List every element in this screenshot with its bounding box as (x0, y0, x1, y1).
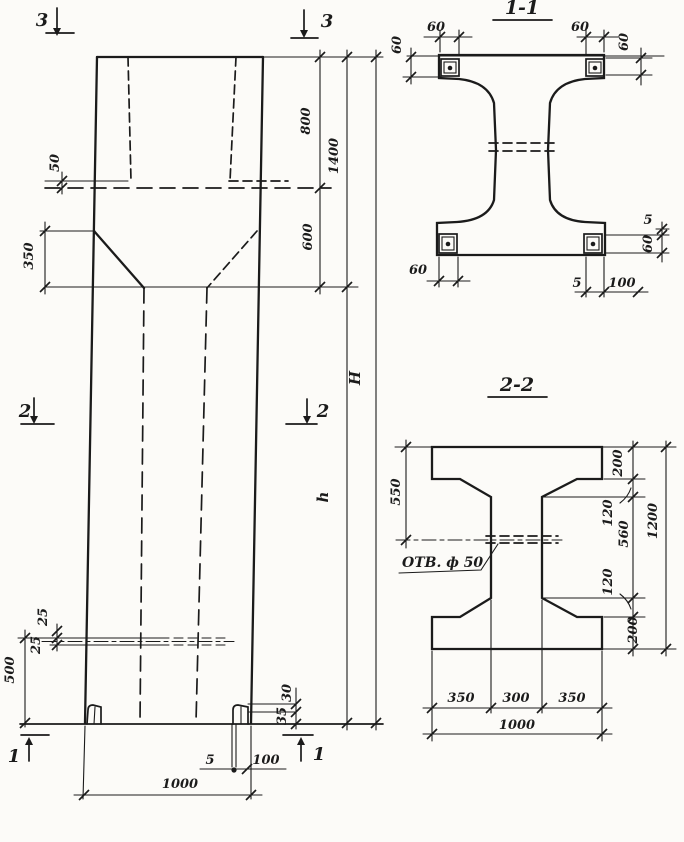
column-drawing: 50 350 800 1400 600 H h 25 25 500 30 35 … (0, 0, 684, 842)
dim-label-1000: 1000 (499, 718, 535, 733)
marker-arrowhead (53, 28, 61, 36)
dim-label-25-upper: 25 (36, 608, 51, 627)
dim-label-600: 600 (301, 223, 316, 250)
dim-label-r60: 60 (617, 33, 632, 51)
dim-label-800: 800 (299, 107, 314, 134)
marker-label: 1 (313, 744, 326, 765)
section-2-2-view: 2-2 ОТВ. ф 50 (389, 374, 676, 741)
marker-label: 2 (18, 401, 32, 422)
plate-dot (591, 242, 596, 247)
marker-arrowhead (300, 30, 308, 38)
hole-label: ОТВ. ф 50 (402, 555, 483, 571)
marker-arrowhead (303, 416, 311, 424)
web-hidden-line-right (196, 288, 207, 722)
plate-dot (448, 66, 453, 71)
marker-label: 2 (316, 401, 330, 422)
cap-hidden-line-left (128, 57, 131, 181)
dim-label-l60: 60 (390, 36, 405, 54)
section-marker-3-right: 3 (291, 10, 333, 38)
dim-label-b100: 100 (608, 276, 635, 291)
dim-label-rb60: 60 (641, 235, 656, 253)
web-hidden-line-left (140, 288, 144, 722)
embed-plate-top-left (441, 59, 459, 76)
section-marker-1-left: 1 (8, 735, 49, 767)
dim-label-h: h (314, 492, 332, 503)
dim-label-50: 50 (48, 154, 63, 172)
dim-label-b5: 5 (572, 276, 581, 291)
extension-1000-left (83, 726, 85, 799)
dim-label-1000: 1000 (162, 777, 198, 792)
embed-plate-top-right (586, 59, 604, 76)
dim-label-tl60: 60 (427, 20, 445, 35)
dim-label-350-left: 350 (447, 691, 474, 706)
dim-label-1400: 1400 (327, 138, 342, 174)
embed-plate-bottom-left (439, 234, 457, 253)
dim-label-1200: 1200 (646, 503, 661, 539)
dim-label-30: 30 (280, 684, 295, 702)
marker-label: 3 (321, 11, 334, 32)
section-1-1-outline (437, 55, 605, 255)
dim-label-350: 350 (22, 242, 37, 269)
plate-dot (446, 242, 451, 247)
dim-label-120-top: 120 (601, 499, 616, 526)
section-1-1-title: 1-1 (505, 0, 539, 19)
plate-dot (593, 66, 598, 71)
section-marker-1-right: 1 (283, 735, 325, 765)
marker-label: 3 (36, 10, 49, 31)
column-left-edge (85, 57, 97, 723)
marker-arrowhead (297, 737, 305, 745)
section-marker-2-right: 2 (286, 399, 329, 424)
marker-label: 1 (8, 746, 21, 767)
drawing-sheet: 50 350 800 1400 600 H h 25 25 500 30 35 … (0, 0, 684, 842)
dim-label-25-lower: 25 (29, 636, 44, 655)
dim-label-tr60: 60 (571, 20, 589, 35)
section-2-2-outline (432, 447, 602, 649)
dim-label-5: 5 (205, 753, 214, 768)
embed-plate-bottom-right (584, 234, 602, 253)
dim-label-200-bottom: 200 (626, 616, 641, 644)
taper-edge-hidden (207, 231, 257, 288)
marker-arrowhead (25, 737, 33, 745)
elevation-view: 50 350 800 1400 600 H h 25 25 500 30 35 … (3, 8, 383, 800)
dim-label-bl60: 60 (409, 263, 427, 278)
left-foot-inner-line (94, 707, 95, 724)
dim-label-550: 550 (389, 478, 404, 505)
section-2-2-title: 2-2 (499, 374, 534, 396)
anchor-dot (231, 767, 236, 772)
dim-label-560: 560 (617, 520, 632, 547)
dim-label-120-bottom: 120 (601, 568, 616, 595)
section-marker-2-left: 2 (18, 398, 54, 424)
dim-label-H: H (346, 370, 364, 386)
dim-label-300: 300 (502, 691, 529, 706)
cap-hidden-line-right (230, 57, 236, 181)
dim-label-35: 35 (275, 707, 290, 725)
section-1-1-view: 1-1 (390, 0, 669, 297)
dim-label-r5: 5 (643, 213, 652, 228)
dim-label-100: 100 (252, 753, 279, 768)
column-right-edge (251, 57, 263, 723)
dim-label-200-top: 200 (611, 449, 626, 477)
section-marker-3-left: 3 (36, 8, 74, 36)
dim-label-500: 500 (3, 656, 18, 683)
taper-edge-visible (94, 231, 144, 288)
dim-label-350-right: 350 (558, 691, 585, 706)
